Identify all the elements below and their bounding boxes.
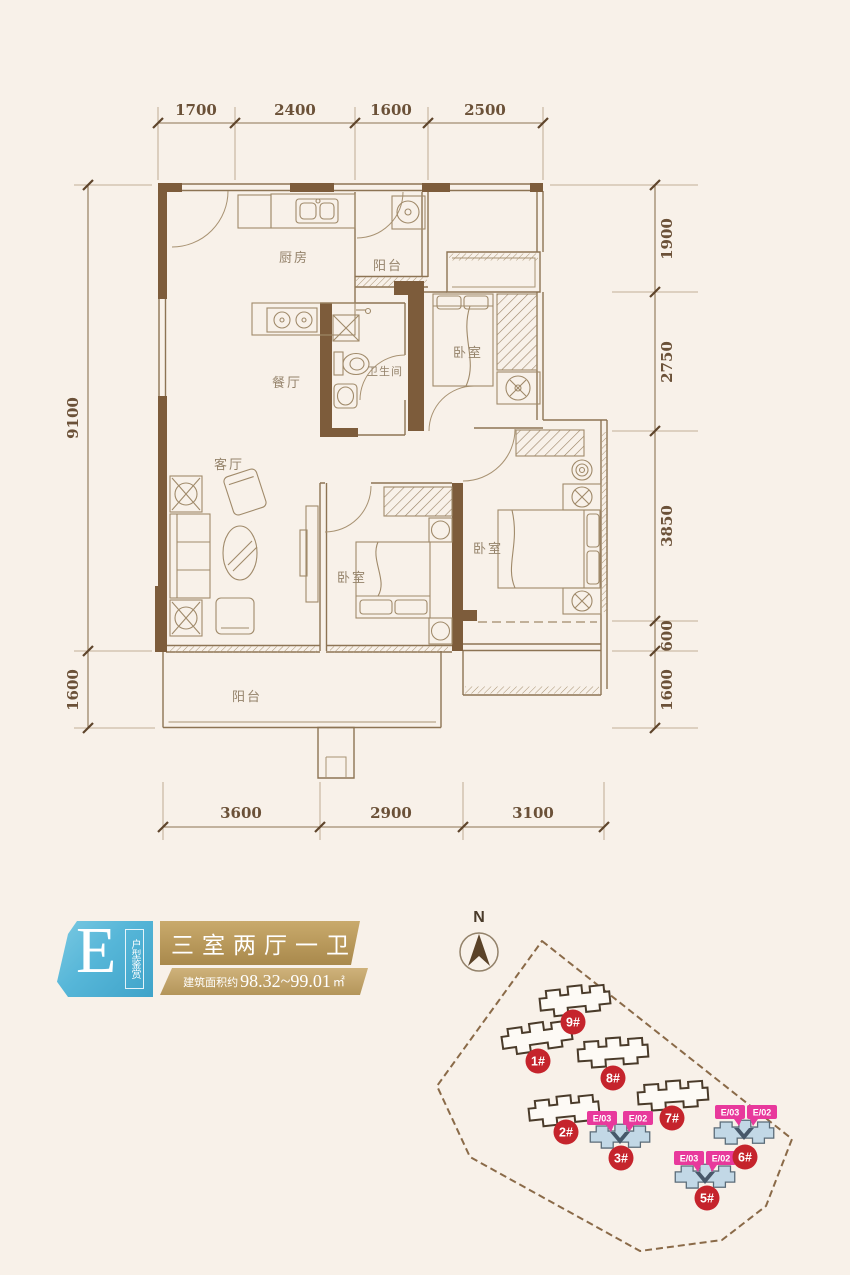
layout-title-banner: 三室两厅一卫	[160, 921, 360, 965]
dim-top-2: 2400	[274, 101, 316, 119]
dim-top-3: 1600	[370, 101, 412, 119]
building-label-6: 6#	[733, 1145, 758, 1170]
svg-text:E/02: E/02	[753, 1108, 772, 1118]
svg-text:9#: 9#	[566, 1016, 580, 1030]
dim-bottom-3: 3100	[512, 804, 554, 822]
building-label-7: 7#	[660, 1106, 685, 1131]
room-label-dining: 餐厅	[272, 375, 302, 390]
dim-right-5: 1600	[658, 669, 676, 711]
svg-text:8#: 8#	[606, 1072, 620, 1086]
floorplan-page: 1700 2400 1600 2500 9100 1600 1900 2750 …	[0, 0, 850, 1275]
compass-icon	[460, 933, 498, 971]
dim-left-2: 1600	[64, 669, 82, 711]
svg-text:E/02: E/02	[712, 1154, 731, 1164]
unit-badge: E 户型鉴赏	[57, 921, 153, 997]
building-footprint-8	[577, 1036, 649, 1069]
room-label-kitchen: 厨房	[279, 250, 309, 265]
walls-thin	[158, 184, 607, 778]
room-label-bedroom-top-right: 卧室	[453, 345, 483, 360]
room-label-bedroom-bottom-right: 卧室	[473, 541, 503, 556]
svg-text:2#: 2#	[559, 1126, 573, 1140]
dim-top-4: 2500	[464, 101, 506, 119]
dim-right-1: 1900	[658, 218, 676, 260]
unit-legend: E 户型鉴赏 三室两厅一卫 建筑面积约 98.32~99.01 ㎡	[57, 921, 368, 997]
building-footprint-5	[675, 1164, 735, 1188]
svg-text:1#: 1#	[531, 1055, 545, 1069]
dim-right-3: 3850	[658, 505, 676, 547]
svg-text:E/02: E/02	[629, 1114, 648, 1124]
svg-text:E/03: E/03	[680, 1154, 699, 1164]
area-value: 98.32~99.01	[240, 971, 331, 992]
legend-banners: 三室两厅一卫 建筑面积约 98.32~99.01 ㎡	[160, 921, 368, 995]
area-prefix: 建筑面积约	[183, 974, 238, 990]
sitemap: N E/03 E/02	[437, 909, 792, 1251]
svg-text:5#: 5#	[700, 1192, 714, 1206]
building-footprint-6	[714, 1120, 774, 1144]
svg-text:6#: 6#	[738, 1151, 752, 1165]
building-label-8: 8#	[601, 1066, 626, 1091]
room-label-balcony-top: 阳台	[373, 258, 403, 273]
svg-text:E/03: E/03	[593, 1114, 612, 1124]
building-label-5: 5#	[695, 1186, 720, 1211]
building-label-9: 9#	[561, 1010, 586, 1035]
room-label-balcony-bottom: 阳台	[232, 689, 262, 704]
svg-text:E/03: E/03	[721, 1108, 740, 1118]
floorplan-canvas: 1700 2400 1600 2500 9100 1600 1900 2750 …	[0, 0, 850, 1275]
unit-letter: E	[76, 913, 116, 989]
dim-right-2: 2750	[658, 341, 676, 383]
area-banner: 建筑面积约 98.32~99.01 ㎡	[160, 968, 368, 995]
building-footprint-3	[590, 1124, 650, 1148]
room-label-bedroom-middle: 卧室	[337, 570, 367, 585]
building-label-1: 1#	[526, 1049, 551, 1074]
room-label-living: 客厅	[214, 457, 244, 472]
dim-right-4: 600	[658, 620, 676, 651]
north-label: N	[473, 909, 485, 926]
area-unit: ㎡	[333, 973, 345, 990]
room-label-bathroom: 卫生间	[367, 364, 403, 378]
dim-bottom-2: 2900	[370, 804, 412, 822]
dim-left-1: 9100	[64, 397, 82, 439]
svg-text:3#: 3#	[614, 1152, 628, 1166]
site-boundary	[437, 941, 792, 1251]
dim-top-1: 1700	[175, 101, 217, 119]
building-label-3: 3#	[609, 1146, 634, 1171]
svg-text:7#: 7#	[665, 1112, 679, 1126]
dim-bottom-1: 3600	[220, 804, 262, 822]
building-label-2: 2#	[554, 1120, 579, 1145]
unit-vertical-label: 户型鉴赏	[125, 929, 144, 989]
